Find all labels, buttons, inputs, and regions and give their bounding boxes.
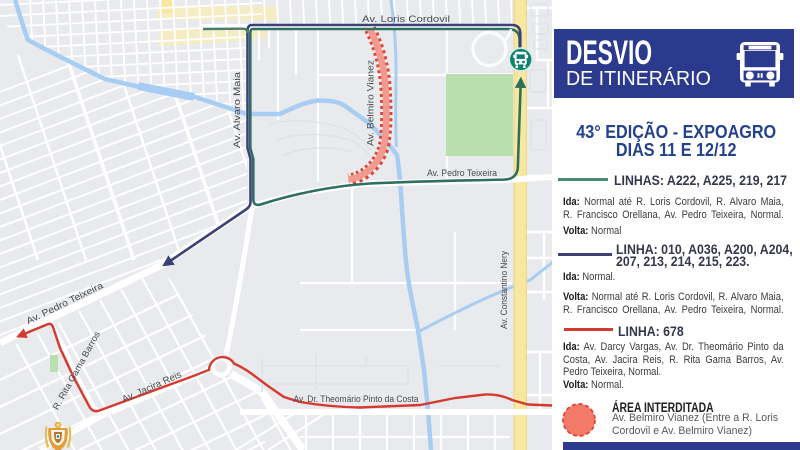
svg-text:Av. Loris Cordovil: Av. Loris Cordovil [362, 14, 450, 25]
svg-text:Av. Belmiro Vianez: Av. Belmiro Vianez [366, 60, 377, 146]
svg-text:Av. Alvaro Maia: Av. Alvaro Maia [232, 71, 243, 148]
svg-text:Av. Dr. Theomário Pinto da Cos: Av. Dr. Theomário Pinto da Costa [294, 394, 419, 404]
svg-text:Av. Pedro Teixeira: Av. Pedro Teixeira [427, 168, 498, 179]
svg-text:Av. Constantino Nery: Av. Constantino Nery [499, 251, 509, 329]
